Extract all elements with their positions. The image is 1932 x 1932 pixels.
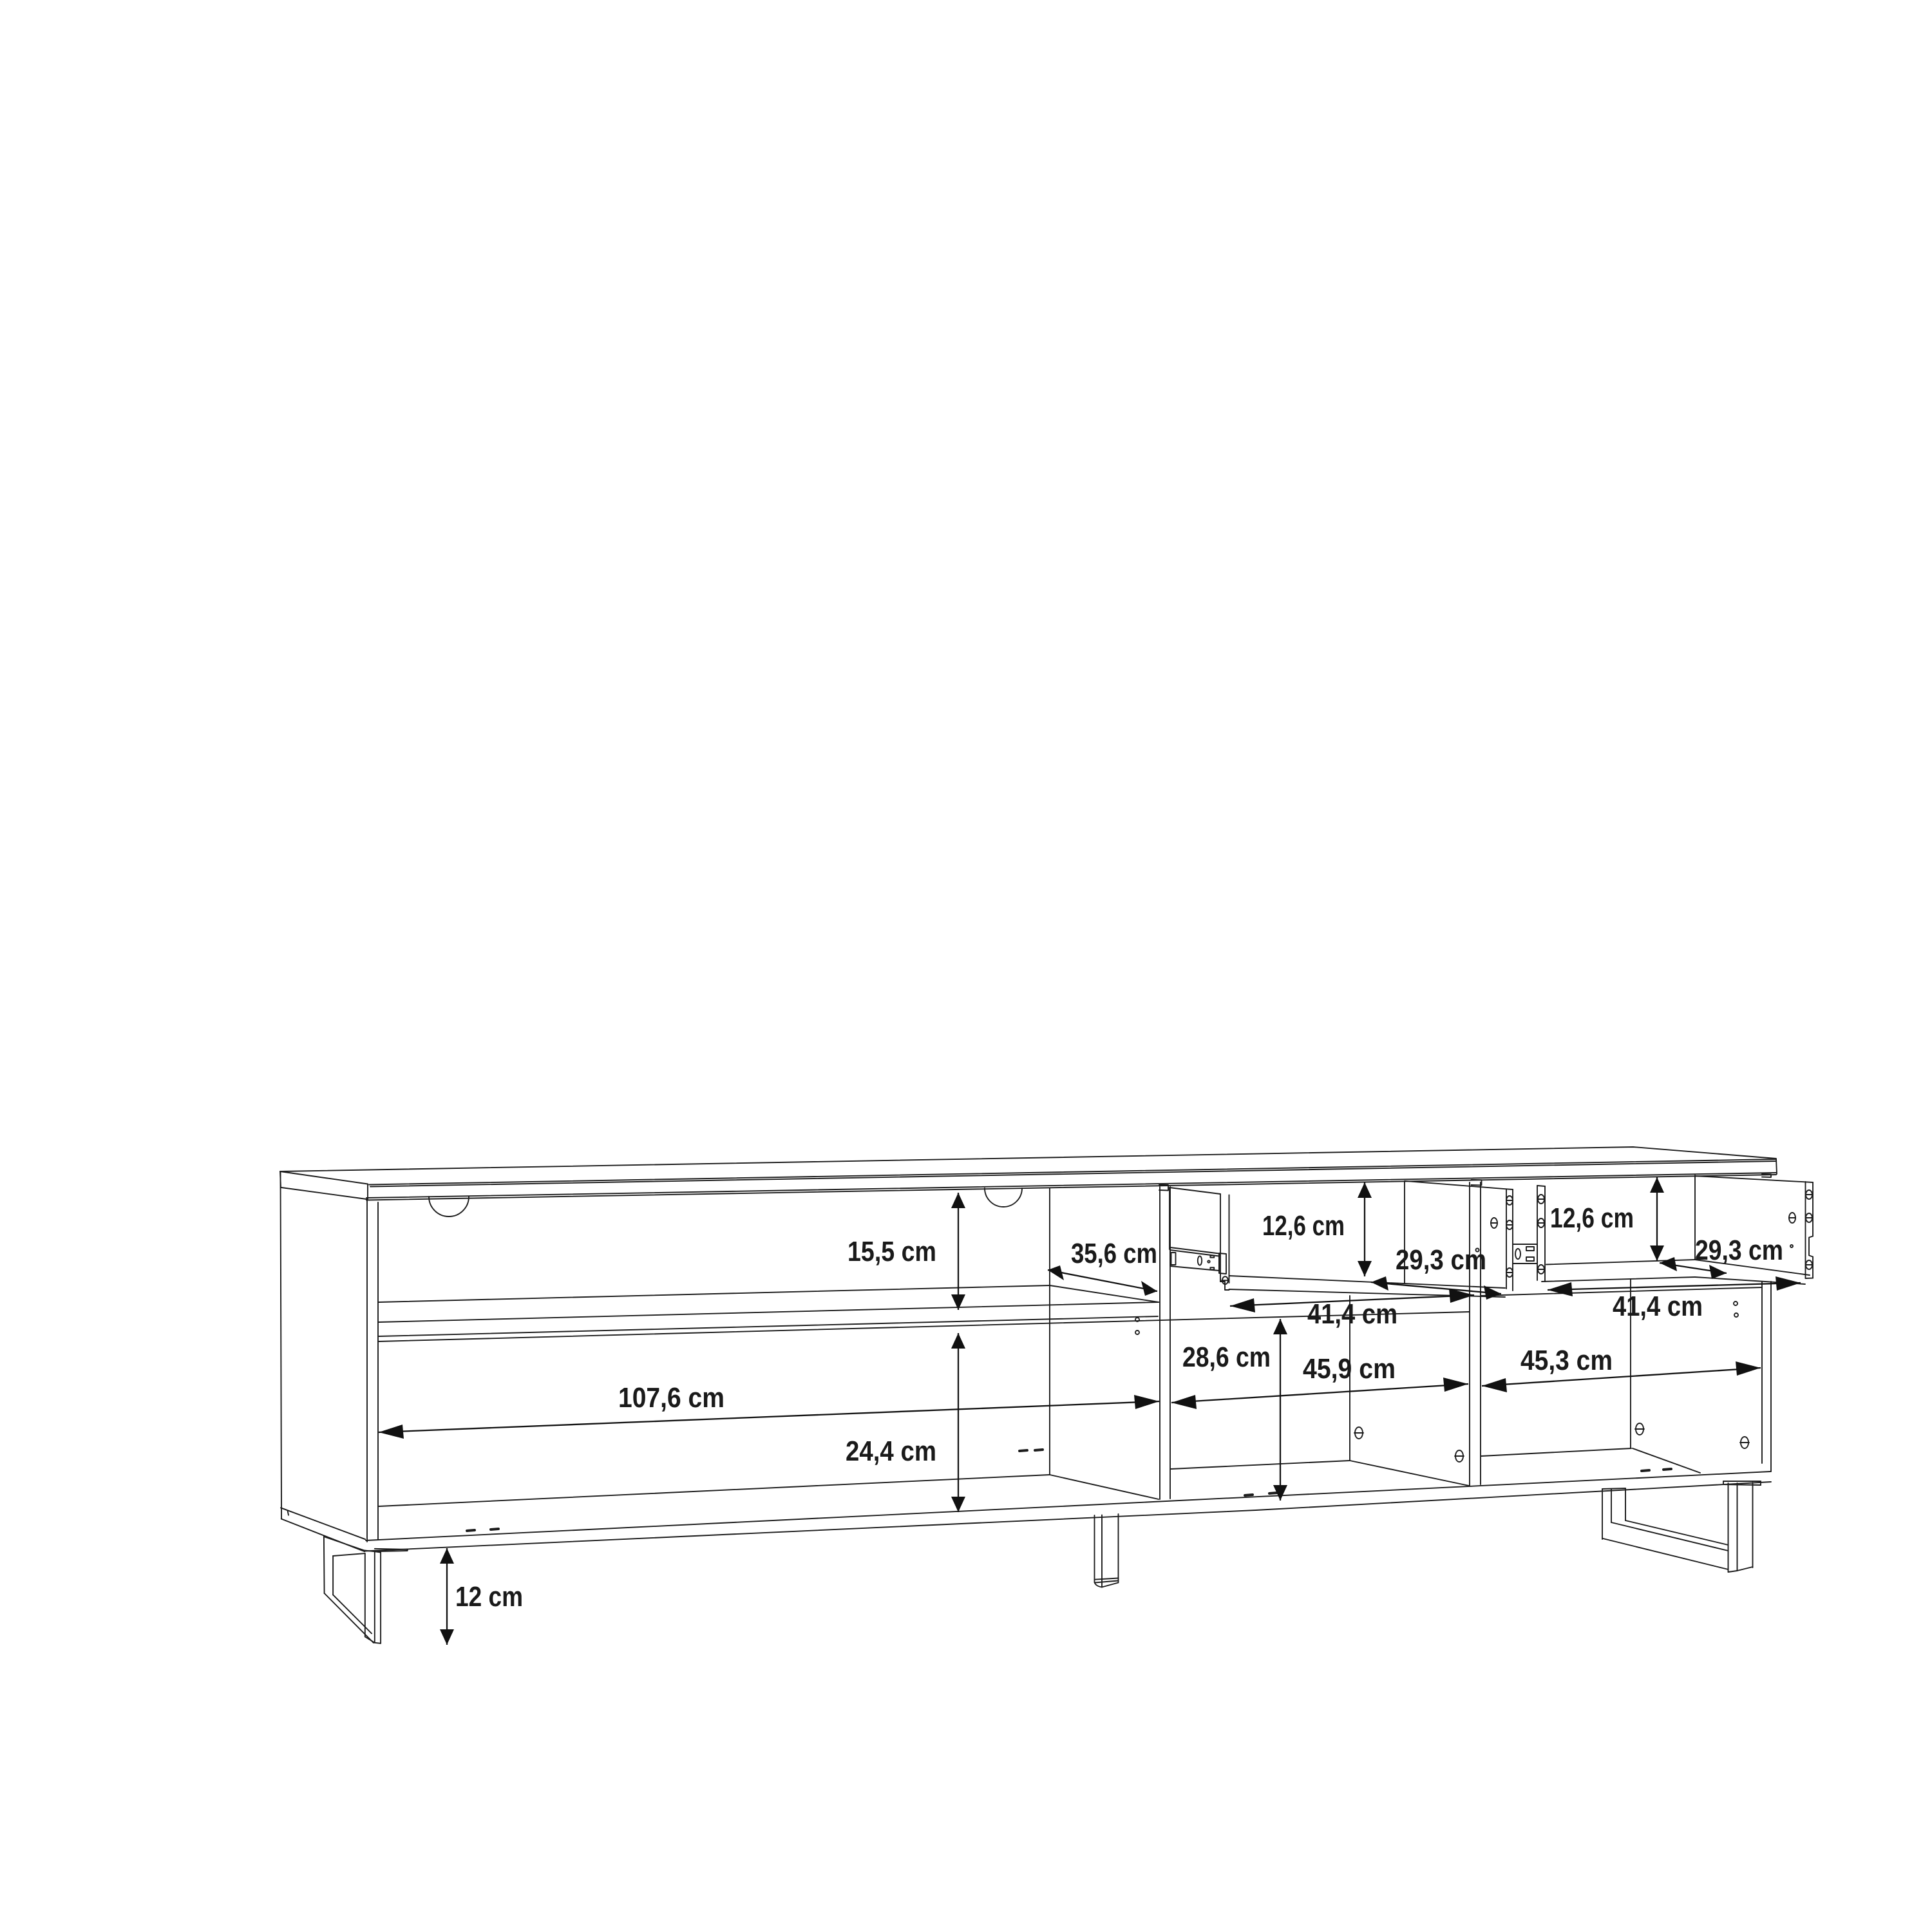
svg-text:35,6 cm: 35,6 cm (1071, 1238, 1157, 1269)
svg-text:12,6 cm: 12,6 cm (1262, 1210, 1345, 1242)
svg-text:45,9 cm: 45,9 cm (1303, 1353, 1396, 1385)
svg-text:107,6 cm: 107,6 cm (618, 1382, 724, 1414)
svg-text:15,5 cm: 15,5 cm (848, 1236, 936, 1267)
svg-text:41,4 cm: 41,4 cm (1307, 1298, 1397, 1330)
svg-text:45,3 cm: 45,3 cm (1520, 1345, 1613, 1376)
svg-text:12,6 cm: 12,6 cm (1550, 1202, 1634, 1234)
svg-text:28,6 cm: 28,6 cm (1182, 1341, 1271, 1373)
svg-text:29,3 cm: 29,3 cm (1396, 1244, 1486, 1276)
svg-text:12 cm: 12 cm (455, 1581, 523, 1613)
svg-text:29,3 cm: 29,3 cm (1695, 1235, 1783, 1266)
svg-text:41,4 cm: 41,4 cm (1613, 1291, 1703, 1322)
svg-text:24,4 cm: 24,4 cm (846, 1435, 936, 1467)
